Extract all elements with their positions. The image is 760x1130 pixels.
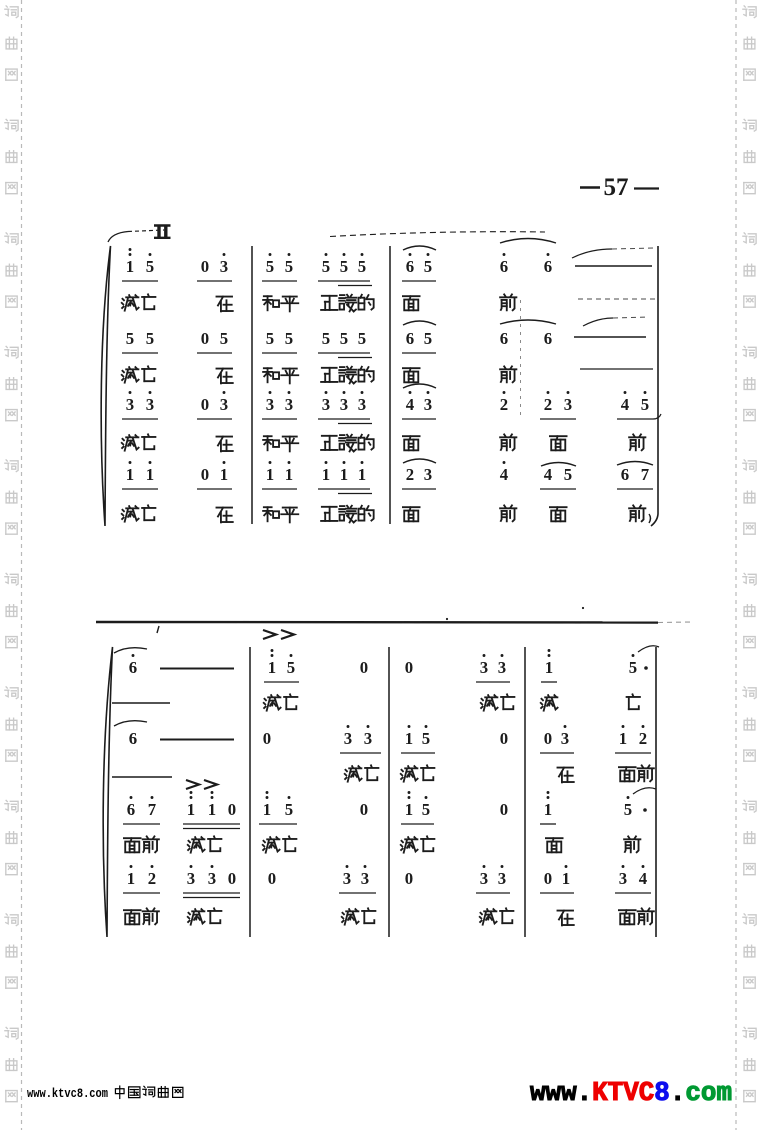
svg-text:1: 1 (220, 465, 228, 484)
svg-text:5: 5 (146, 257, 154, 276)
svg-text:0: 0 (405, 658, 413, 677)
svg-text:1: 1 (146, 465, 154, 484)
svg-text:5: 5 (340, 257, 348, 276)
svg-text:3: 3 (220, 257, 228, 276)
svg-text:1: 1 (322, 465, 330, 484)
svg-text:5: 5 (340, 329, 348, 348)
svg-text:6: 6 (129, 658, 137, 677)
svg-text:5: 5 (266, 257, 274, 276)
svg-text:5: 5 (220, 329, 228, 348)
svg-text:6: 6 (129, 729, 137, 748)
svg-text:3: 3 (619, 869, 627, 888)
svg-text:1: 1 (544, 800, 552, 819)
svg-text:3: 3 (364, 729, 372, 748)
svg-text:5: 5 (285, 800, 293, 819)
svg-text:5: 5 (424, 257, 432, 276)
svg-text:6: 6 (621, 465, 629, 484)
svg-text:2: 2 (406, 465, 414, 484)
svg-text:0: 0 (500, 729, 508, 748)
svg-text:3: 3 (498, 658, 506, 677)
svg-text:www.ktvc8.com: www.ktvc8.com (27, 1086, 108, 1101)
svg-text:0: 0 (544, 869, 552, 888)
svg-text:5: 5 (629, 658, 637, 677)
svg-text:5: 5 (266, 329, 274, 348)
svg-text:5: 5 (285, 257, 293, 276)
svg-text:6: 6 (500, 329, 508, 348)
svg-text:1: 1 (358, 465, 366, 484)
svg-text:0: 0 (263, 729, 271, 748)
svg-text:3: 3 (344, 729, 352, 748)
svg-text:4: 4 (639, 869, 648, 888)
svg-text:5: 5 (322, 257, 330, 276)
svg-text:6: 6 (544, 257, 552, 276)
svg-text:3: 3 (424, 465, 432, 484)
svg-text:3: 3 (358, 395, 366, 414)
svg-text:1: 1 (405, 800, 413, 819)
svg-text:4: 4 (544, 465, 553, 484)
svg-text:6: 6 (406, 257, 414, 276)
svg-text:3: 3 (561, 729, 569, 748)
svg-text:1: 1 (263, 800, 271, 819)
svg-text:5: 5 (287, 658, 295, 677)
svg-text:5: 5 (285, 329, 293, 348)
svg-text:3: 3 (480, 869, 488, 888)
svg-text:1: 1 (126, 257, 134, 276)
svg-text:1: 1 (266, 465, 274, 484)
svg-text:1: 1 (127, 869, 135, 888)
svg-text:1: 1 (545, 658, 553, 677)
svg-text:1: 1 (340, 465, 348, 484)
svg-text:5: 5 (322, 329, 330, 348)
svg-text:1: 1 (268, 658, 276, 677)
svg-text:5: 5 (422, 800, 430, 819)
svg-text:5: 5 (358, 329, 366, 348)
svg-text:www.KTVC8.com: www.KTVC8.com (530, 1078, 732, 1108)
svg-text:1: 1 (619, 729, 627, 748)
svg-text:5: 5 (641, 395, 649, 414)
svg-text:5: 5 (358, 257, 366, 276)
svg-text:57: 57 (604, 174, 629, 201)
svg-text:2: 2 (148, 869, 156, 888)
svg-text:6: 6 (500, 257, 508, 276)
svg-text:5: 5 (146, 329, 154, 348)
svg-text:1: 1 (187, 800, 195, 819)
svg-text:0: 0 (201, 395, 209, 414)
svg-text:4: 4 (500, 465, 509, 484)
svg-text:0: 0 (500, 800, 508, 819)
svg-text:0: 0 (201, 329, 209, 348)
svg-text:5: 5 (624, 800, 632, 819)
svg-text:3: 3 (285, 395, 293, 414)
svg-text:3: 3 (187, 869, 195, 888)
svg-text:0: 0 (201, 465, 209, 484)
svg-text:3: 3 (126, 395, 134, 414)
svg-text:2: 2 (544, 395, 552, 414)
svg-text:3: 3 (146, 395, 154, 414)
svg-text:4: 4 (406, 395, 415, 414)
svg-text:5: 5 (564, 465, 572, 484)
svg-text:7: 7 (641, 465, 649, 484)
svg-text:3: 3 (424, 395, 432, 414)
svg-text:3: 3 (220, 395, 228, 414)
svg-text:6: 6 (127, 800, 135, 819)
svg-text:5: 5 (422, 729, 430, 748)
svg-text:3: 3 (480, 658, 488, 677)
svg-text:0: 0 (268, 869, 276, 888)
svg-text:0: 0 (544, 729, 552, 748)
svg-text:3: 3 (361, 869, 369, 888)
svg-text:3: 3 (564, 395, 572, 414)
svg-text:2: 2 (639, 729, 647, 748)
svg-text:3: 3 (208, 869, 216, 888)
svg-text:5: 5 (126, 329, 134, 348)
svg-text:7: 7 (148, 800, 156, 819)
svg-text:6: 6 (406, 329, 414, 348)
svg-text:4: 4 (621, 395, 630, 414)
svg-text:3: 3 (266, 395, 274, 414)
svg-text:3: 3 (322, 395, 330, 414)
svg-text:0: 0 (228, 869, 236, 888)
svg-text:6: 6 (544, 329, 552, 348)
svg-text:1: 1 (405, 729, 413, 748)
svg-text:3: 3 (498, 869, 506, 888)
svg-text:0: 0 (228, 800, 236, 819)
svg-text:0: 0 (360, 658, 368, 677)
svg-text:1: 1 (285, 465, 293, 484)
svg-text:0: 0 (405, 869, 413, 888)
svg-text:2: 2 (500, 395, 508, 414)
svg-text:3: 3 (343, 869, 351, 888)
svg-text:1: 1 (562, 869, 570, 888)
svg-text:1: 1 (208, 800, 216, 819)
svg-text:0: 0 (201, 257, 209, 276)
svg-text:1: 1 (126, 465, 134, 484)
svg-text:5: 5 (424, 329, 432, 348)
svg-text:0: 0 (360, 800, 368, 819)
svg-text:3: 3 (340, 395, 348, 414)
